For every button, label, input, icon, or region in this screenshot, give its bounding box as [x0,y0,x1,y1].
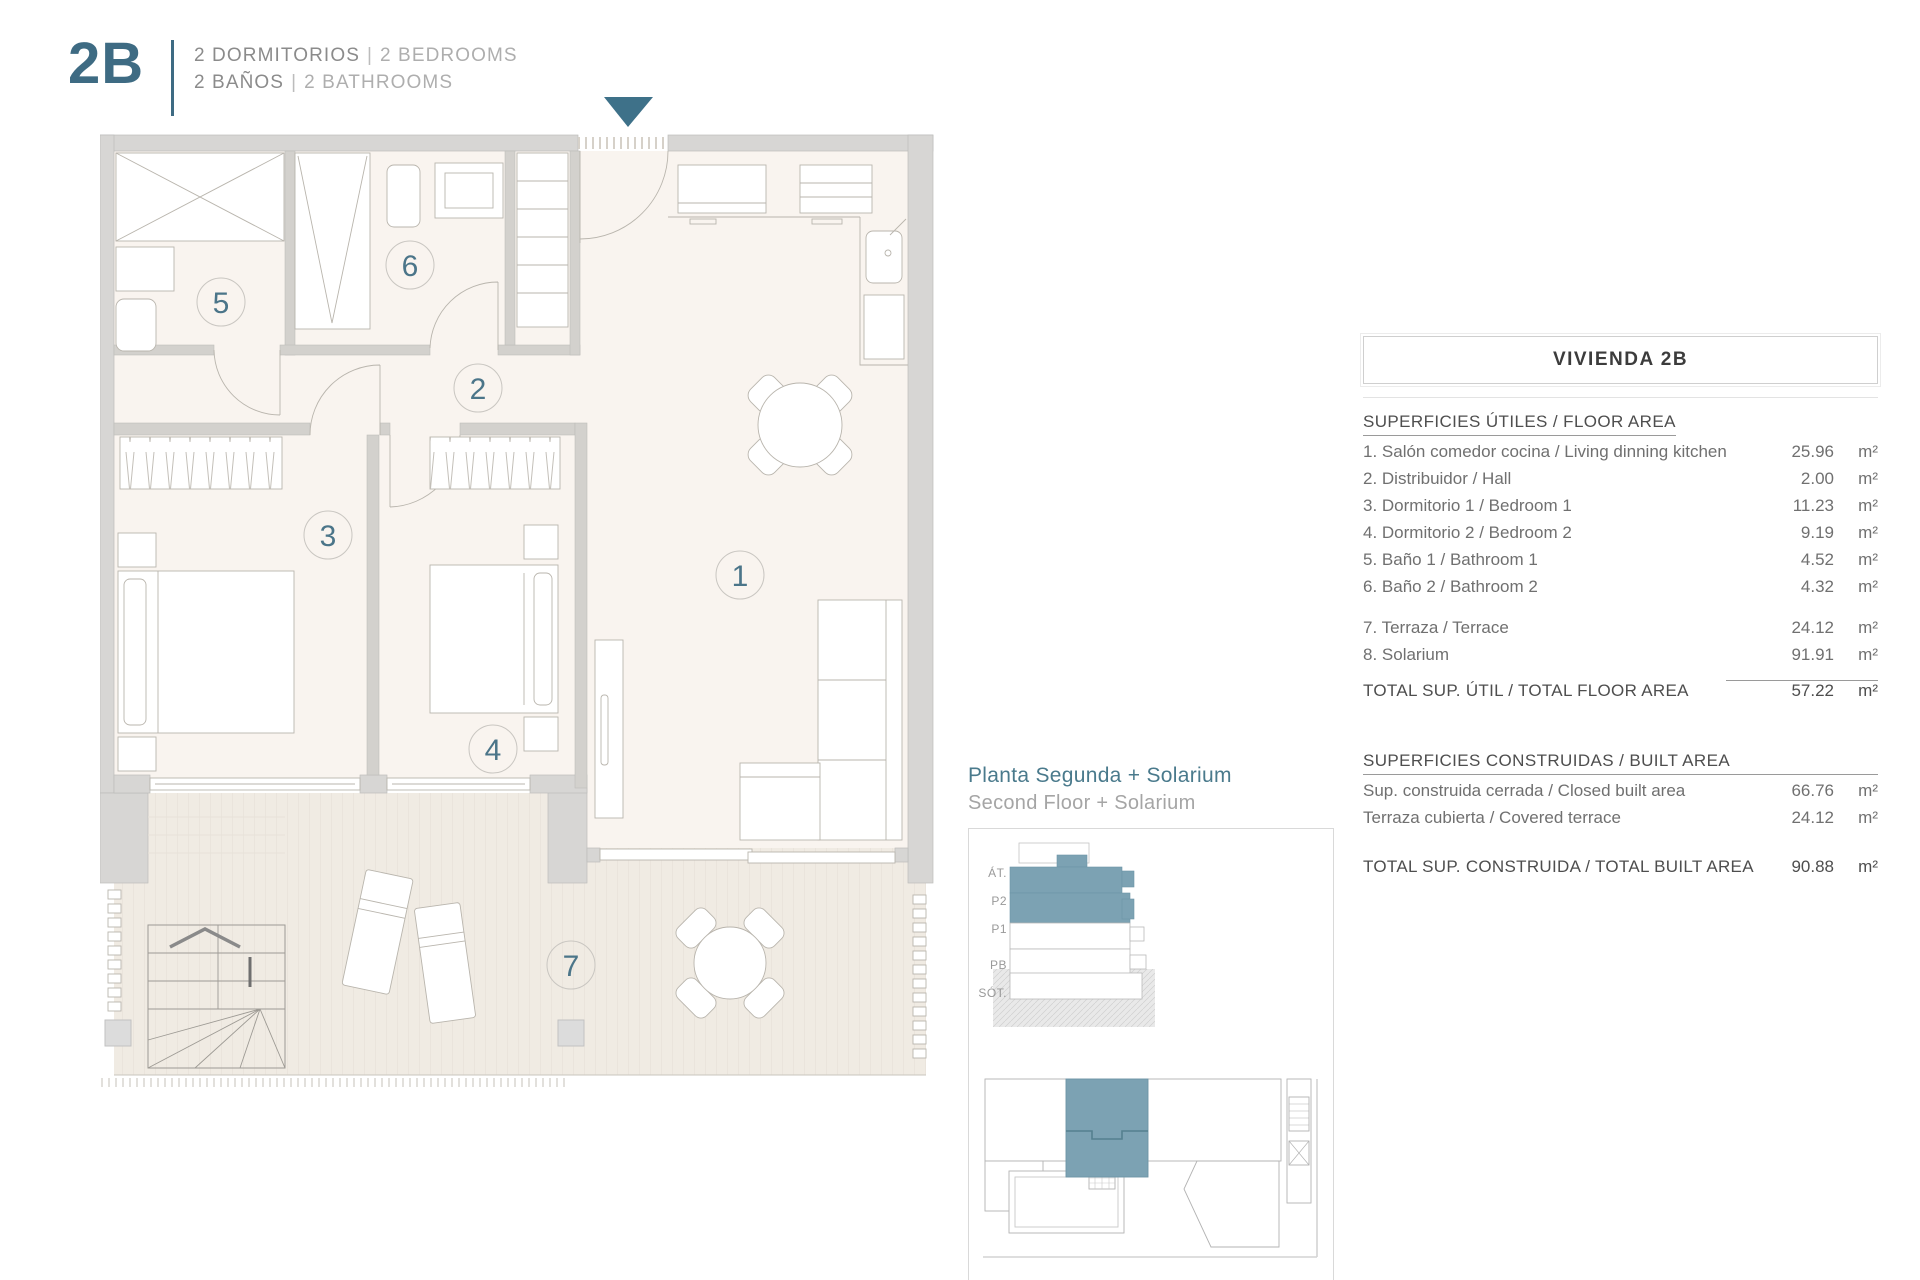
entrance-arrow-icon [604,97,653,127]
closet [517,153,568,327]
washbasin [116,247,174,291]
tv-unit [595,640,623,818]
level-label-pb: PB [990,958,1007,972]
area-value: 25.96 [1772,442,1834,462]
deck-edge-hatch [102,1078,564,1087]
sink [866,231,902,283]
area-unit: m² [1834,496,1878,516]
total-value: 57.22 [1772,681,1834,701]
area-unit: m² [1834,645,1878,665]
area-unit: m² [1834,442,1878,462]
svg-text:6: 6 [402,250,419,283]
area-unit: m² [1834,618,1878,638]
table-title: VIVIENDA 2B [1553,349,1688,371]
shower [116,153,284,241]
plan-caption-subtitle: Second Floor + Solarium [968,792,1196,815]
total-label: TOTAL SUP. CONSTRUIDA / TOTAL BUILT AREA [1363,857,1772,877]
svg-text:4: 4 [485,734,502,767]
floor-area-heading: SUPERFICIES ÚTILES / FLOOR AREA [1363,412,1676,436]
bathrooms-label-en: 2 BATHROOMS [304,72,453,93]
area-row: Sup. construida cerrada / Closed built a… [1363,781,1878,808]
built-area-section: SUPERFICIES CONSTRUIDAS / BUILT AREA Sup… [1363,751,1878,891]
location-diagram-svg: ÁT. P2 P1 PB SÓT. [969,829,1331,1280]
area-label: 8. Solarium [1363,645,1772,665]
area-value: 24.12 [1772,618,1834,638]
area-label: 7. Terraza / Terrace [1363,618,1772,638]
header-line-1: 2 DORMITORIOS|2 BEDROOMS [194,42,518,69]
area-unit: m² [1834,577,1878,597]
bedrooms-label-en: 2 BEDROOMS [380,45,518,66]
total-value: 90.88 [1772,857,1834,877]
area-row: Terraza cubierta / Covered terrace 24.12… [1363,808,1878,835]
bedrooms-label-es: 2 DORMITORIOS [194,45,360,66]
plan-caption-title: Planta Segunda + Solarium [968,764,1232,788]
divider-rule [1363,397,1878,398]
area-row: 1. Salón comedor cocina / Living dinning… [1363,442,1878,469]
area-value: 91.91 [1772,645,1834,665]
area-label: Terraza cubierta / Covered terrace [1363,808,1772,828]
svg-text:7: 7 [563,950,580,983]
header-line-2: 2 BAÑOS|2 BATHROOMS [194,69,518,96]
area-row: 5. Baño 1 / Bathroom 1 4.52 m² [1363,550,1878,577]
area-row: 6. Baño 2 / Bathroom 2 4.32 m² [1363,577,1878,604]
area-label: 1. Salón comedor cocina / Living dinning… [1363,442,1772,462]
wardrobe-hangers [430,437,560,489]
area-label: 4. Dormitorio 2 / Bedroom 2 [1363,523,1772,543]
unit-code: 2B [68,30,144,97]
area-value: 11.23 [1772,496,1834,516]
level-label-sotano: SÓT. [978,985,1007,1000]
area-row: 2. Distribuidor / Hall 2.00 m² [1363,469,1878,496]
svg-text:5: 5 [213,287,230,320]
total-unit: m² [1834,857,1878,877]
area-row: 7. Terraza / Terrace 24.12 m² [1363,618,1878,645]
area-unit: m² [1834,469,1878,489]
location-diagram-box: ÁT. P2 P1 PB SÓT. [968,828,1334,1280]
area-label: 2. Distribuidor / Hall [1363,469,1772,489]
building-section: ÁT. P2 P1 PB SÓT. [978,843,1155,1027]
total-unit: m² [1834,681,1878,701]
dining-table [744,371,855,478]
area-label: Sup. construida cerrada / Closed built a… [1363,781,1772,801]
area-unit: m² [1834,781,1878,801]
toilet [387,165,420,227]
planter [105,1020,131,1046]
separator: | [360,45,380,66]
washbasin [435,163,503,218]
entrance-sill [578,137,668,149]
area-value: 66.76 [1772,781,1834,801]
total-floor-area-row: TOTAL SUP. ÚTIL / TOTAL FLOOR AREA 57.22… [1363,681,1878,715]
area-label: 6. Baño 2 / Bathroom 2 [1363,577,1772,597]
page: 2B 2 DORMITORIOS|2 BEDROOMS 2 BAÑOS|2 BA… [0,0,1920,1280]
area-unit: m² [1834,808,1878,828]
total-label: TOTAL SUP. ÚTIL / TOTAL FLOOR AREA [1363,681,1772,701]
area-unit: m² [1834,550,1878,570]
table-title-box: VIVIENDA 2B [1363,336,1878,384]
floor-plan-svg: 1 2 3 4 5 6 7 [100,95,935,1100]
highlighted-unit [1066,1079,1148,1177]
area-value: 9.19 [1772,523,1834,543]
area-value: 4.32 [1772,577,1834,597]
area-value: 24.12 [1772,808,1834,828]
area-label: 3. Dormitorio 1 / Bedroom 1 [1363,496,1772,516]
svg-text:1: 1 [732,560,749,593]
separator: | [284,72,304,93]
svg-text:3: 3 [320,520,337,553]
area-value: 2.00 [1772,469,1834,489]
floor-area-section: SUPERFICIES ÚTILES / FLOOR AREA 1. Salón… [1363,412,1878,715]
area-row: 8. Solarium 91.91 m² [1363,645,1878,672]
area-unit: m² [1834,523,1878,543]
site-plan [983,1079,1317,1257]
planter [558,1020,584,1046]
area-row: 4. Dormitorio 2 / Bedroom 2 9.19 m² [1363,523,1878,550]
area-value: 4.52 [1772,550,1834,570]
level-label-atico: ÁT. [988,865,1007,880]
built-area-heading: SUPERFICIES CONSTRUIDAS / BUILT AREA [1363,751,1878,775]
level-label-p2: P2 [991,894,1007,908]
header-subtitle: 2 DORMITORIOS|2 BEDROOMS 2 BAÑOS|2 BATHR… [194,42,518,96]
area-row: 3. Dormitorio 1 / Bedroom 1 11.23 m² [1363,496,1878,523]
wardrobe-hangers [120,437,282,489]
area-label: 5. Baño 1 / Bathroom 1 [1363,550,1772,570]
level-label-p1: P1 [991,922,1007,936]
svg-text:2: 2 [470,373,487,406]
total-built-area-row: TOTAL SUP. CONSTRUIDA / TOTAL BUILT AREA… [1363,857,1878,891]
bathrooms-label-es: 2 BAÑOS [194,72,284,93]
toilet [116,299,156,351]
shower [295,153,370,329]
area-table: VIVIENDA 2B SUPERFICIES ÚTILES / FLOOR A… [1363,336,1878,891]
